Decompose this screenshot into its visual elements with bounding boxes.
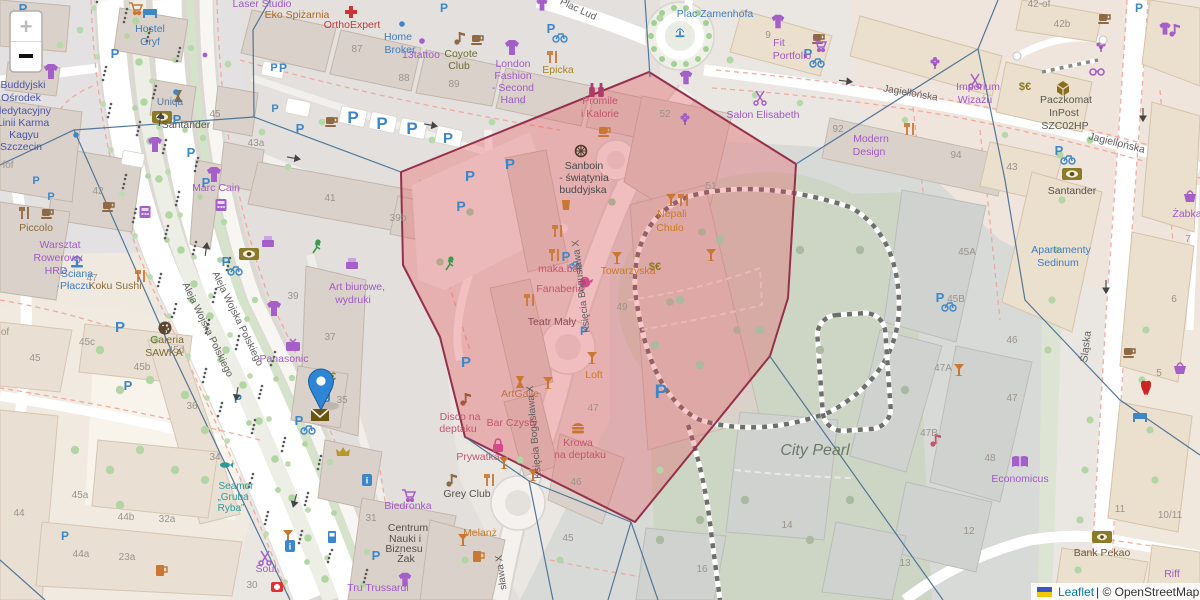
svg-text:Chulo: Chulo [656,222,684,234]
svg-text:SZC02HP: SZC02HP [1041,120,1088,132]
svg-text:Leaflet: Leaflet [1058,585,1095,599]
svg-text:44a: 44a [73,549,90,560]
svg-text:P: P [443,130,453,147]
svg-text:Santander: Santander [162,119,211,131]
svg-text:P: P [271,103,278,115]
svg-text:5: 5 [1156,368,1162,379]
svg-text:InPost: InPost [1049,107,1079,119]
svg-text:51: 51 [705,181,717,192]
svg-text:88: 88 [398,73,410,84]
svg-text:Nepali: Nepali [657,208,687,220]
svg-text:46: 46 [1006,335,1018,346]
svg-text:Coyote: Coyote [444,48,477,60]
svg-text:Żabka: Żabka [1172,207,1200,220]
svg-text:P: P [279,61,287,75]
svg-text:45A: 45A [958,247,976,258]
svg-text:P: P [547,21,556,36]
svg-text:Koku Sushi: Koku Sushi [88,280,141,292]
svg-text:45a: 45a [72,490,89,501]
svg-text:Szczecin: Szczecin [0,141,42,153]
svg-text:P: P [465,168,475,185]
svg-text:Żak: Żak [397,552,415,565]
svg-text:Home: Home [384,31,412,43]
svg-text:Imperium: Imperium [956,81,1000,93]
svg-text:45: 45 [29,353,41,364]
svg-text:35: 35 [336,395,348,406]
svg-text:39b: 39b [390,213,407,224]
svg-text:Marc Cain: Marc Cain [192,182,240,194]
svg-text:P: P [1055,143,1064,158]
svg-text:P: P [296,121,305,136]
svg-text:41: 41 [324,193,336,204]
svg-text:i: i [289,542,292,552]
svg-text:7: 7 [1185,234,1191,245]
svg-text:47B: 47B [920,428,938,439]
svg-text:Gryf: Gryf [140,36,160,48]
svg-text:Salon Elisabeth: Salon Elisabeth [727,109,800,121]
svg-text:Wizażu: Wizażu [958,94,993,106]
svg-text:Economicus: Economicus [991,473,1048,485]
svg-text:P: P [32,175,39,187]
svg-text:Buddyjski: Buddyjski [1,79,46,91]
svg-text:6: 6 [1171,294,1177,305]
svg-text:10/11: 10/11 [1158,510,1183,521]
svg-text:49: 49 [616,302,628,313]
svg-text:42-of: 42-of [1028,0,1051,10]
svg-text:Uniqa: Uniqa [157,97,184,108]
svg-text:London: London [495,58,530,70]
svg-text:45b: 45b [134,362,151,373]
svg-text:46: 46 [570,477,582,488]
svg-text:34: 34 [209,452,221,463]
svg-text:Sanboin: Sanboin [565,160,604,172]
svg-text:37: 37 [324,332,336,343]
svg-text:87: 87 [351,44,363,55]
svg-text:P: P [295,413,304,428]
svg-text:Rowerowy: Rowerowy [33,252,83,264]
svg-text:P: P [376,114,387,133]
svg-text:P: P [111,46,120,61]
svg-text:Fit: Fit [773,37,785,49]
svg-text:Panasonic: Panasonic [259,353,308,365]
svg-text:30: 30 [246,580,258,591]
svg-text:11: 11 [1115,504,1126,515]
svg-text:Ściana: Ściana [61,267,93,280]
svg-text:of: of [1,327,10,338]
svg-text:45: 45 [562,533,574,544]
svg-text:89: 89 [448,79,460,90]
svg-text:fof: fof [2,160,13,171]
svg-text:32a: 32a [159,514,176,525]
svg-text:Galeria: Galeria [150,334,184,346]
svg-text:47A: 47A [934,363,952,374]
svg-text:SAWKA: SAWKA [145,347,183,359]
svg-text:P: P [440,1,448,15]
svg-text:42: 42 [92,186,104,197]
svg-text:ledytacyjny: ledytacyjny [0,105,52,117]
svg-text:Art biurowe,: Art biurowe, [329,281,385,293]
svg-text:Melanż: Melanż [463,527,497,539]
svg-text:P: P [461,354,471,371]
svg-text:Plac Zamenhofa: Plac Zamenhofa [677,8,754,20]
svg-text:Fashion: Fashion [494,70,532,82]
svg-text:buddyjska: buddyjska [559,184,606,196]
svg-text:14: 14 [781,520,793,531]
svg-text:P: P [406,119,417,138]
svg-text:45: 45 [209,109,221,120]
svg-text:P: P [655,382,668,403]
svg-text:- Second: - Second [492,82,534,94]
svg-text:36: 36 [186,401,198,412]
svg-text:P: P [562,249,571,264]
svg-text:P: P [1135,1,1143,15]
svg-text:12: 12 [963,526,975,537]
svg-text:wydruki: wydruki [334,294,371,306]
svg-text:Grey Club: Grey Club [443,488,490,500]
svg-text:Design: Design [853,146,886,158]
svg-text:Piccolo: Piccolo [19,222,53,234]
svg-text:Biedronka: Biedronka [384,500,431,512]
svg-text:Apartamenty: Apartamenty [1031,244,1091,256]
svg-text:Portfolio: Portfolio [773,50,812,62]
svg-text:Modern: Modern [853,133,889,145]
svg-text:- świątynia: - świątynia [559,172,609,184]
svg-text:23a: 23a [119,552,136,563]
svg-text:Disco na: Disco na [440,411,481,423]
svg-text:43: 43 [1006,162,1018,173]
svg-text:Bank Pekao: Bank Pekao [1074,547,1131,559]
svg-text:OrthoExpert: OrthoExpert [324,19,381,31]
svg-text:Epicka: Epicka [542,64,574,76]
svg-text:Ryba”: Ryba” [218,503,245,514]
svg-text:Prywatka: Prywatka [456,451,499,463]
svg-text:31: 31 [365,513,377,524]
svg-text:44: 44 [13,508,25,519]
svg-text:P: P [936,290,945,305]
svg-text:| © OpenStreetMap: | © OpenStreetMap [1096,585,1200,599]
svg-text:Eko Spiżarnia: Eko Spiżarnia [265,9,330,21]
svg-text:Santander: Santander [1048,185,1097,197]
svg-text:Hand: Hand [500,94,525,106]
svg-text:P: P [115,319,125,336]
svg-text:deptaku: deptaku [439,423,477,435]
svg-text:i: i [366,476,369,486]
svg-text:P: P [124,378,133,393]
svg-text:47: 47 [1006,393,1018,404]
svg-text:$€: $€ [1019,81,1031,93]
svg-text:Linii Karma: Linii Karma [0,117,49,129]
svg-text:na deptaku: na deptaku [554,449,606,461]
svg-text:P: P [187,145,196,160]
svg-text:+: + [20,14,33,39]
svg-text:Teatr Mały: Teatr Mały [528,316,577,328]
svg-text:13: 13 [899,558,911,569]
svg-text:P: P [270,62,277,74]
svg-text:Loft: Loft [585,369,603,381]
svg-text:i Kalorie: i Kalorie [581,108,619,120]
svg-text:City Pearl: City Pearl [780,442,850,459]
svg-text:Tru Trussardi: Tru Trussardi [347,582,408,594]
svg-text:Hostel: Hostel [135,23,165,35]
svg-text:„Gruba: „Gruba [217,492,249,503]
svg-text:39: 39 [287,291,299,302]
svg-text:94: 94 [950,150,962,161]
svg-text:Ośrodek: Ośrodek [1,92,41,104]
svg-text:Broker: Broker [385,44,416,56]
svg-text:52: 52 [659,109,671,120]
svg-text:Promile: Promile [582,95,618,107]
svg-text:P: P [456,198,465,214]
svg-text:92: 92 [832,124,844,135]
svg-text:Towarzyska: Towarzyska [601,265,656,277]
svg-text:P: P [61,529,69,543]
svg-text:P: P [347,108,358,127]
svg-text:9: 9 [765,30,771,41]
svg-text:Soul: Soul [255,563,276,575]
svg-text:Krowa: Krowa [563,437,593,449]
svg-text:48: 48 [984,453,996,464]
svg-text:Warsztat: Warsztat [39,239,80,251]
svg-text:47: 47 [587,403,599,414]
svg-text:·Płaczu: ·Płaczu [56,280,91,292]
svg-text:Paczkomat: Paczkomat [1040,94,1092,106]
svg-text:44b: 44b [118,512,135,523]
svg-text:Sedinum: Sedinum [1037,257,1079,269]
svg-text:Riff: Riff [1164,568,1180,580]
svg-text:43a: 43a [248,138,265,149]
svg-text:45c: 45c [79,337,95,348]
svg-text:16: 16 [696,564,708,575]
svg-text:45B: 45B [947,294,965,305]
svg-text:Club: Club [448,60,470,72]
svg-text:42b: 42b [1054,19,1071,30]
svg-text:P: P [372,548,381,563]
svg-text:P: P [47,191,54,203]
svg-text:P: P [222,254,231,269]
svg-text:Seamor: Seamor [218,481,254,492]
svg-text:P: P [505,156,515,173]
svg-text:Kagyu: Kagyu [9,129,39,141]
